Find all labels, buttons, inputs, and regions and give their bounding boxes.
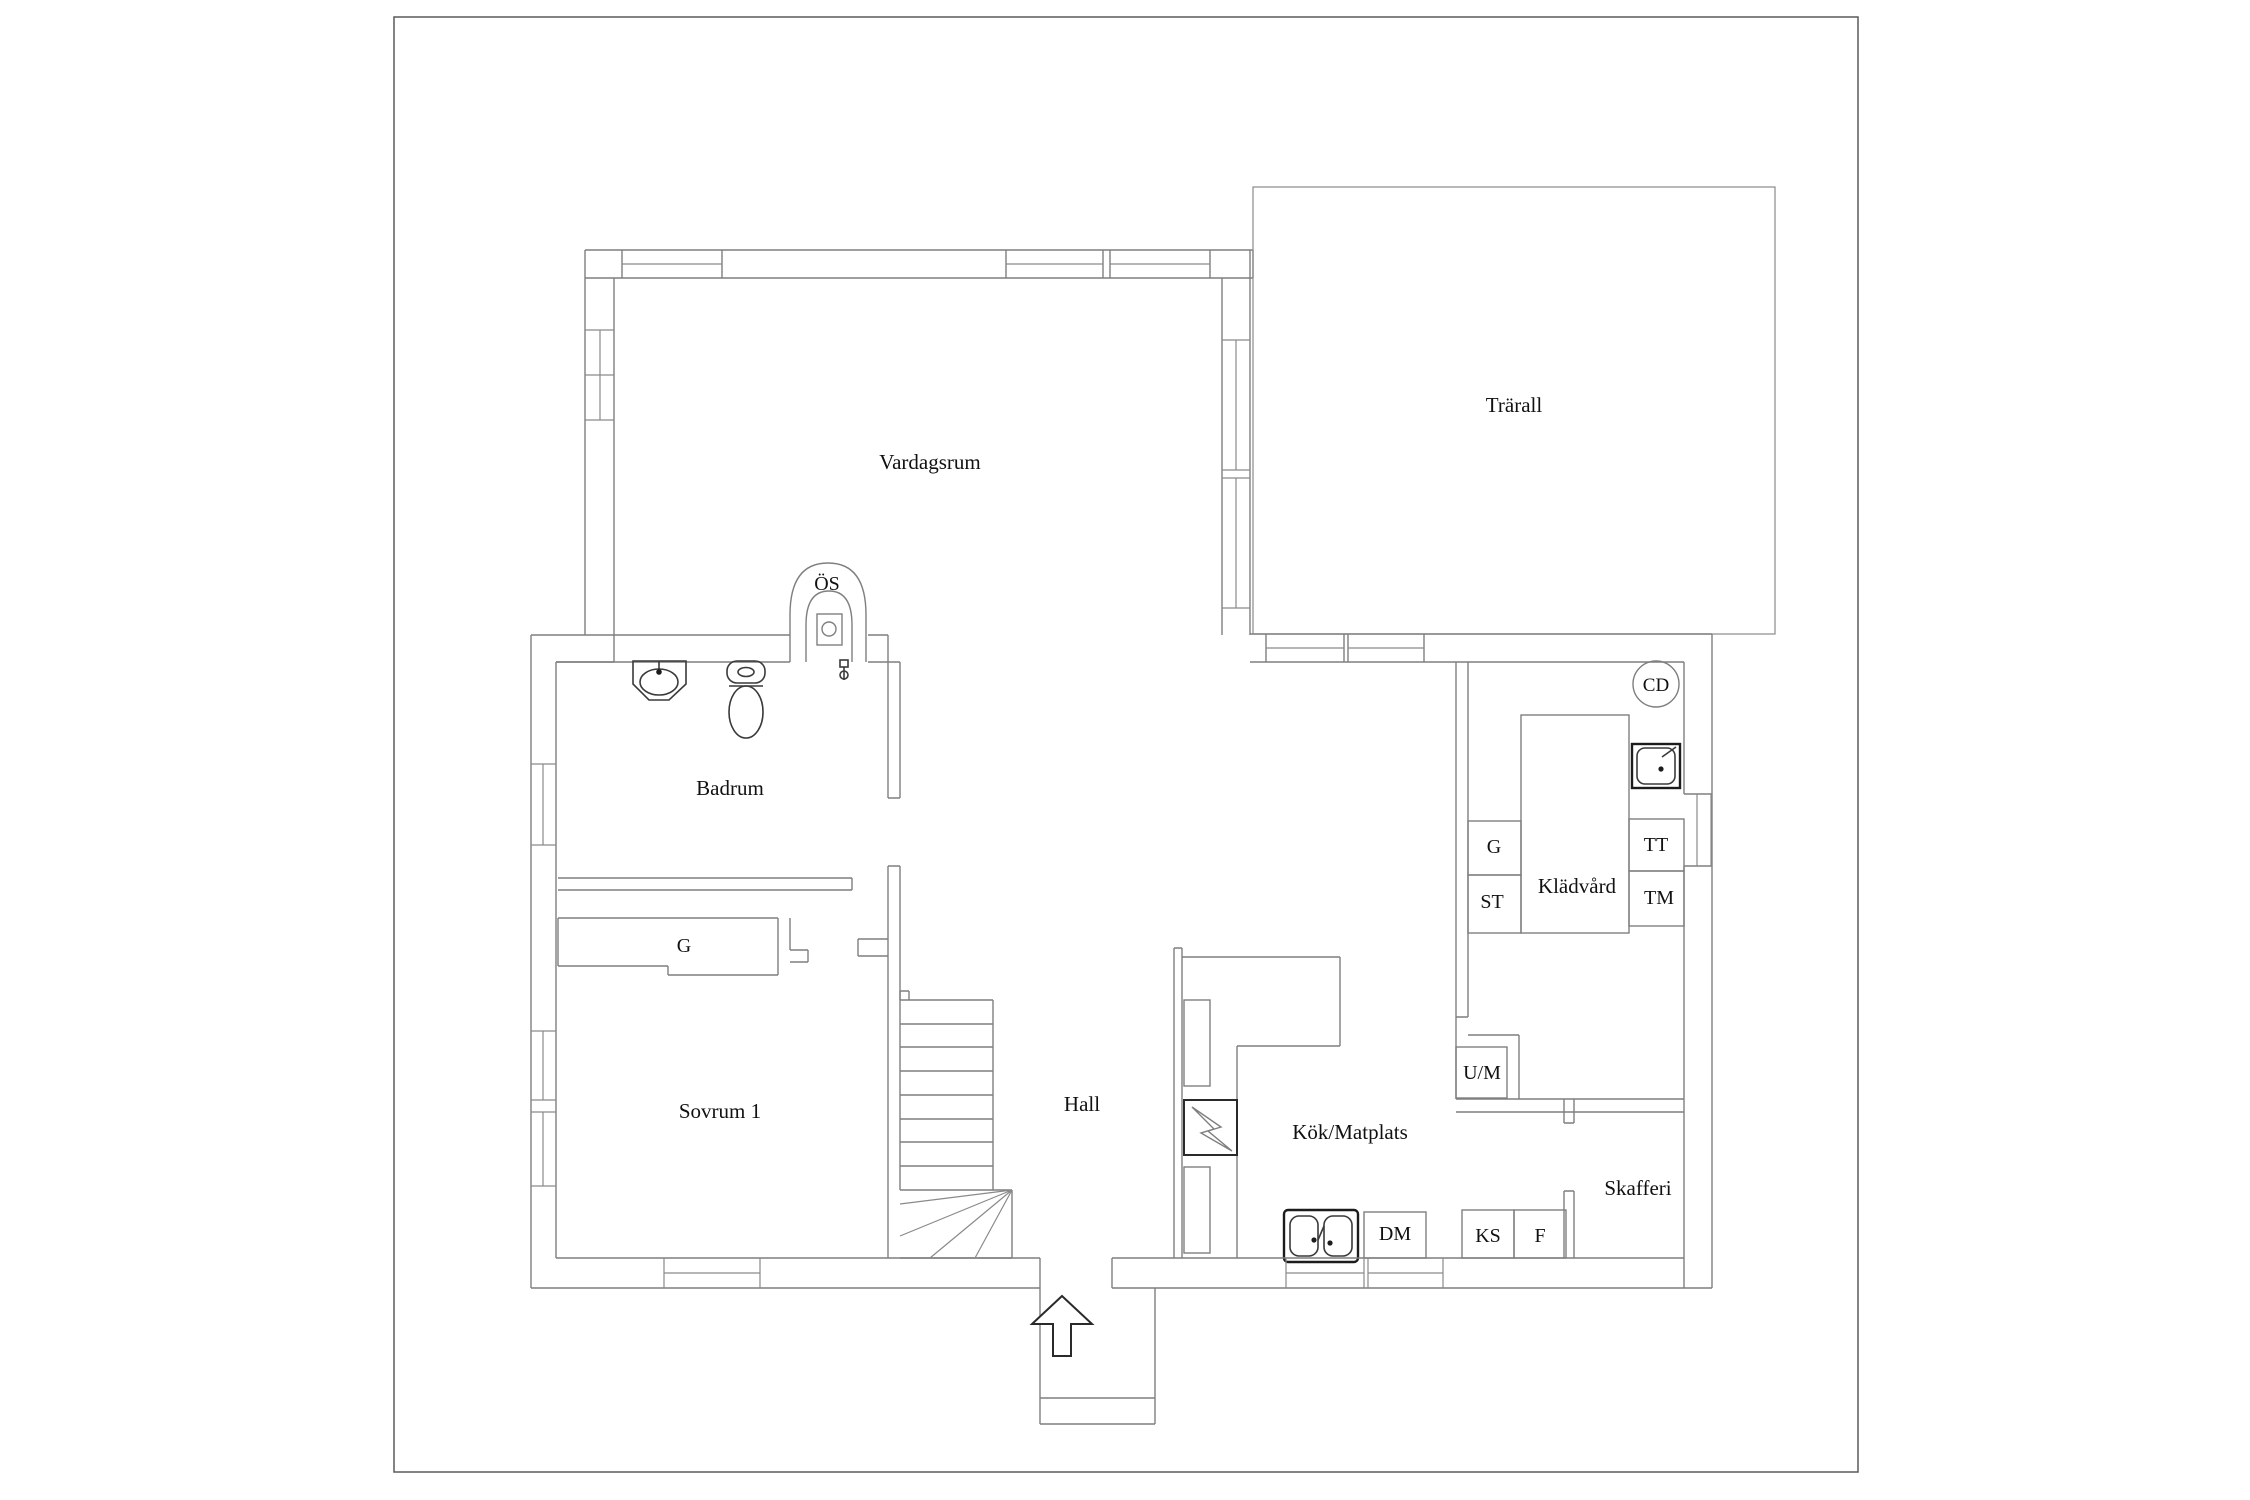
bathroom-fixtures	[633, 660, 848, 738]
label-hall: Hall	[1064, 1092, 1100, 1116]
label-sovrum1: Sovrum 1	[679, 1099, 761, 1123]
floor-plan-page: Vardagsrum Trärall Badrum Sovrum 1 Hall …	[0, 0, 2250, 1500]
bathroom-sink-icon	[633, 661, 686, 700]
west-wall	[531, 278, 614, 1288]
label-dm: DM	[1379, 1223, 1411, 1245]
kladvard-north-wall	[1250, 634, 1712, 662]
kitchen-walls	[1174, 948, 1574, 1262]
label-cd: CD	[1643, 675, 1669, 696]
label-f: F	[1534, 1225, 1545, 1247]
label-st: ST	[1480, 891, 1503, 913]
vardagsrum-east-wall	[1222, 250, 1250, 635]
stairs	[900, 991, 1012, 1258]
laundry-sink-icon	[1632, 744, 1680, 788]
label-kladvard: Klädvård	[1538, 874, 1617, 898]
tall-cabinet-lower	[1184, 1167, 1210, 1253]
west-windows	[531, 330, 614, 1186]
stair-winders	[900, 1190, 1012, 1258]
north-wall	[585, 250, 1253, 278]
east-wall	[1684, 634, 1712, 1288]
entrance-arrow-icon	[1032, 1296, 1092, 1356]
badrum-sovrum-walls	[558, 662, 900, 1258]
label-badrum: Badrum	[696, 776, 764, 800]
floor-plan-drawing: Vardagsrum Trärall Badrum Sovrum 1 Hall …	[0, 0, 2250, 1500]
label-os: ÖS	[814, 572, 840, 595]
skafferi-north-wall	[1456, 1099, 1684, 1123]
label-skafferi: Skafferi	[1604, 1176, 1671, 1200]
label-um: U/M	[1463, 1062, 1501, 1084]
vardagsrum-east-windows	[1222, 340, 1250, 608]
badrum-north-wall	[556, 635, 900, 662]
entrance-porch	[1032, 1288, 1155, 1424]
tall-cabinet-upper	[1184, 1000, 1210, 1086]
label-kok: Kök/Matplats	[1292, 1120, 1408, 1144]
label-vardagsrum: Vardagsrum	[879, 450, 980, 474]
electrical-panel-icon	[1184, 1100, 1237, 1155]
label-g-sovrum: G	[677, 935, 691, 957]
east-wall-door	[1697, 794, 1711, 866]
toilet-icon	[727, 661, 765, 738]
label-g-kladvard: G	[1487, 836, 1501, 858]
south-wall	[531, 1258, 1712, 1288]
label-tm: TM	[1644, 887, 1674, 909]
kitchen-sink-icon	[1284, 1210, 1358, 1262]
label-tt: TT	[1644, 834, 1668, 856]
kladvard-closet	[1521, 715, 1629, 933]
shower-mixer-icon	[840, 660, 848, 680]
label-ks: KS	[1475, 1225, 1501, 1247]
label-trarall: Trärall	[1486, 393, 1543, 417]
